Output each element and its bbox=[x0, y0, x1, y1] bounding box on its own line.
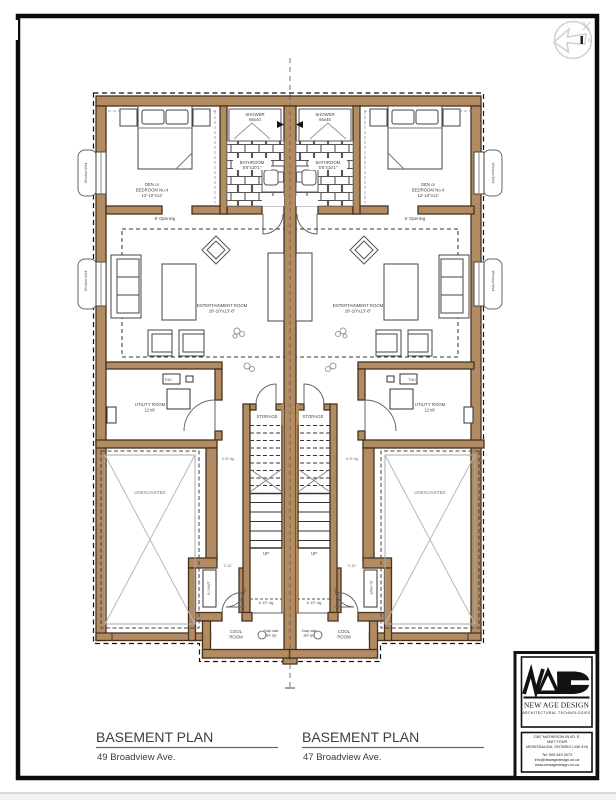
svg-text:STORAGE: STORAGE bbox=[303, 414, 324, 419]
svg-text:BASEMENT PLAN: BASEMENT PLAN bbox=[96, 729, 213, 745]
svg-text:66x40: 66x40 bbox=[249, 117, 261, 122]
svg-text:6'-8" clg: 6'-8" clg bbox=[222, 457, 234, 461]
svg-text:Susp slab: Susp slab bbox=[264, 629, 279, 633]
svg-text:www.newagedesign.on.ca: www.newagedesign.on.ca bbox=[535, 763, 580, 767]
svg-text:ARCHITECTURAL TECHNOLOGIES: ARCHITECTURAL TECHNOLOGIES bbox=[522, 711, 591, 715]
svg-text:2367 MATHESON BLVD. E.: 2367 MATHESON BLVD. E. bbox=[533, 735, 580, 739]
svg-text:MISSISSAUGA, ONTARIO L4W 4Y6: MISSISSAUGA, ONTARIO L4W 4Y6 bbox=[526, 745, 588, 749]
svg-text:UNEXCAVATED: UNEXCAVATED bbox=[414, 490, 445, 495]
svg-text:Tel: 905 949 2673: Tel: 905 949 2673 bbox=[542, 753, 572, 757]
svg-text:5'6"x10'1": 5'6"x10'1" bbox=[243, 165, 262, 170]
svg-text:66x40: 66x40 bbox=[319, 117, 331, 122]
svg-text:11'x6': 11'x6' bbox=[425, 408, 436, 413]
svg-text:18'-10"x13'-8": 18'-10"x13'-8" bbox=[345, 309, 372, 314]
svg-text:4'-10" clg: 4'-10" clg bbox=[307, 601, 322, 605]
svg-text:4'-10" clg: 4'-10" clg bbox=[259, 601, 274, 605]
svg-text:49 Broadview Ave.: 49 Broadview Ave. bbox=[97, 752, 176, 763]
svg-text:ENTERTAINMENT ROOM: ENTERTAINMENT ROOM bbox=[197, 303, 248, 308]
svg-text:47 Broadview Ave.: 47 Broadview Ave. bbox=[303, 752, 382, 763]
svg-text:COOL: COOL bbox=[230, 629, 243, 634]
svg-text:DEN or: DEN or bbox=[145, 182, 160, 187]
svg-text:ENTERTAINMENT ROOM: ENTERTAINMENT ROOM bbox=[333, 303, 384, 308]
svg-text:Window Well: Window Well bbox=[491, 271, 495, 292]
svg-text:info@newagedesign.on.ca: info@newagedesign.on.ca bbox=[535, 758, 581, 762]
svg-text:ROOM: ROOM bbox=[337, 635, 351, 640]
svg-text:6' Opening: 6' Opening bbox=[405, 216, 426, 221]
svg-text:STORAGE: STORAGE bbox=[257, 414, 278, 419]
svg-text:BASEMENT PLAN: BASEMENT PLAN bbox=[302, 729, 419, 745]
svg-text:THU: THU bbox=[164, 378, 172, 382]
svg-text:5'6"x10'1": 5'6"x10'1" bbox=[319, 165, 338, 170]
svg-text:BEDROOM No.4: BEDROOM No.4 bbox=[136, 188, 169, 193]
svg-text:UNEXCAVATED: UNEXCAVATED bbox=[134, 490, 165, 495]
svg-text:11'x6': 11'x6' bbox=[145, 408, 156, 413]
svg-text:THU: THU bbox=[408, 378, 416, 382]
svg-text:abv typ: abv typ bbox=[266, 634, 277, 638]
svg-text:UP: UP bbox=[311, 551, 317, 556]
svg-text:6'-8" clg: 6'-8" clg bbox=[346, 457, 358, 461]
svg-text:UNIT FOUR: UNIT FOUR bbox=[547, 740, 568, 744]
svg-text:ROOM: ROOM bbox=[229, 635, 243, 640]
svg-text:DEN or: DEN or bbox=[421, 182, 436, 187]
svg-text:2'-10": 2'-10" bbox=[224, 564, 233, 568]
svg-text:Window Well: Window Well bbox=[84, 270, 88, 291]
svg-text:2'-10": 2'-10" bbox=[348, 564, 357, 568]
svg-text:UTILITY ROOM: UTILITY ROOM bbox=[415, 402, 446, 407]
svg-text:UTILITY ROOM: UTILITY ROOM bbox=[135, 402, 166, 407]
svg-text:Window Well: Window Well bbox=[491, 163, 495, 184]
svg-text:COOL: COOL bbox=[338, 629, 351, 634]
svg-text:Susp slab: Susp slab bbox=[302, 629, 317, 633]
svg-text:Window Well: Window Well bbox=[84, 162, 88, 183]
svg-text:UP: UP bbox=[263, 551, 269, 556]
svg-text:6' Opening: 6' Opening bbox=[155, 216, 176, 221]
svg-text:N: N bbox=[588, 39, 592, 45]
svg-text:B.I HWT: B.I HWT bbox=[207, 580, 211, 594]
svg-text:NEW AGE DESIGN: NEW AGE DESIGN bbox=[524, 701, 590, 710]
svg-text:BEDROOM No.4: BEDROOM No.4 bbox=[412, 188, 445, 193]
svg-text:12'-10"x12': 12'-10"x12' bbox=[417, 193, 438, 198]
svg-text:B.I HWT: B.I HWT bbox=[369, 581, 373, 595]
svg-text:abv typ: abv typ bbox=[304, 634, 315, 638]
svg-text:12'-10"x12': 12'-10"x12' bbox=[141, 193, 162, 198]
svg-text:18'-10"x13'-8": 18'-10"x13'-8" bbox=[209, 309, 236, 314]
